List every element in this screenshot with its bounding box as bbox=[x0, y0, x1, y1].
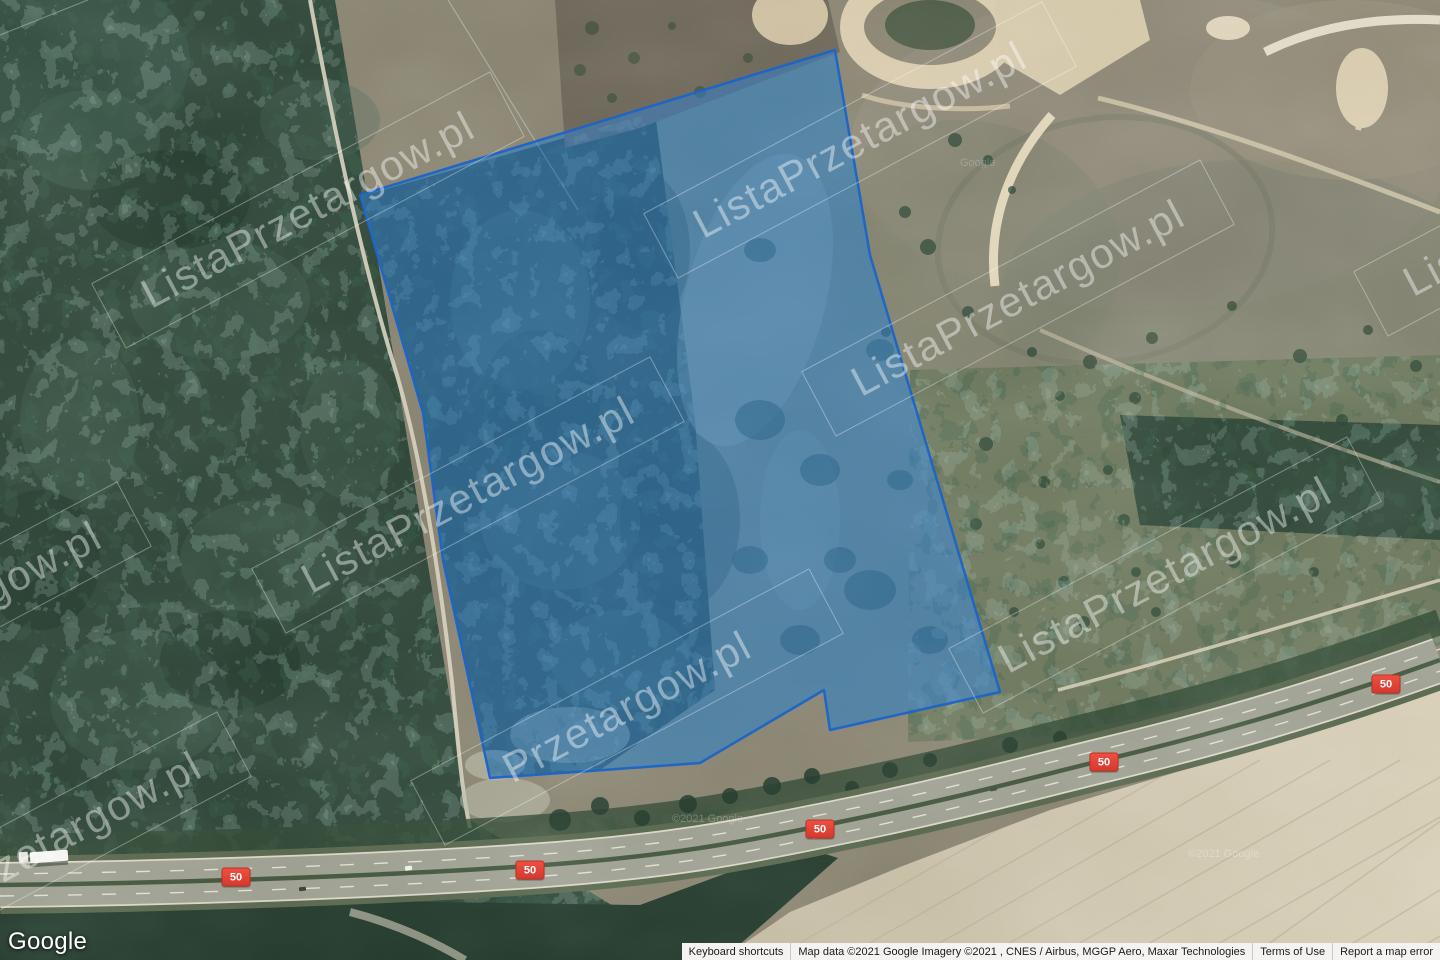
satellite-map: Google©2021 Google©2021 Google bbox=[0, 0, 1440, 960]
imagery-credit-text: ©2021 Google bbox=[672, 813, 743, 825]
keyboard-shortcuts-button[interactable]: Keyboard shortcuts bbox=[682, 943, 791, 960]
attribution-bar: Keyboard shortcuts Map data ©2021 Google… bbox=[682, 943, 1440, 960]
imagery-credit-text: Google bbox=[960, 157, 995, 169]
map-canvas[interactable]: Google©2021 Google©2021 Google ListaPrze… bbox=[0, 0, 1440, 960]
google-logo: Google bbox=[8, 928, 87, 956]
imagery-credit-text: ©2021 Google bbox=[1188, 848, 1259, 860]
terms-of-use-link[interactable]: Terms of Use bbox=[1253, 943, 1332, 960]
map-data-attribution: Map data ©2021 Google Imagery ©2021 , CN… bbox=[791, 943, 1252, 960]
report-map-error-link[interactable]: Report a map error bbox=[1333, 943, 1440, 960]
